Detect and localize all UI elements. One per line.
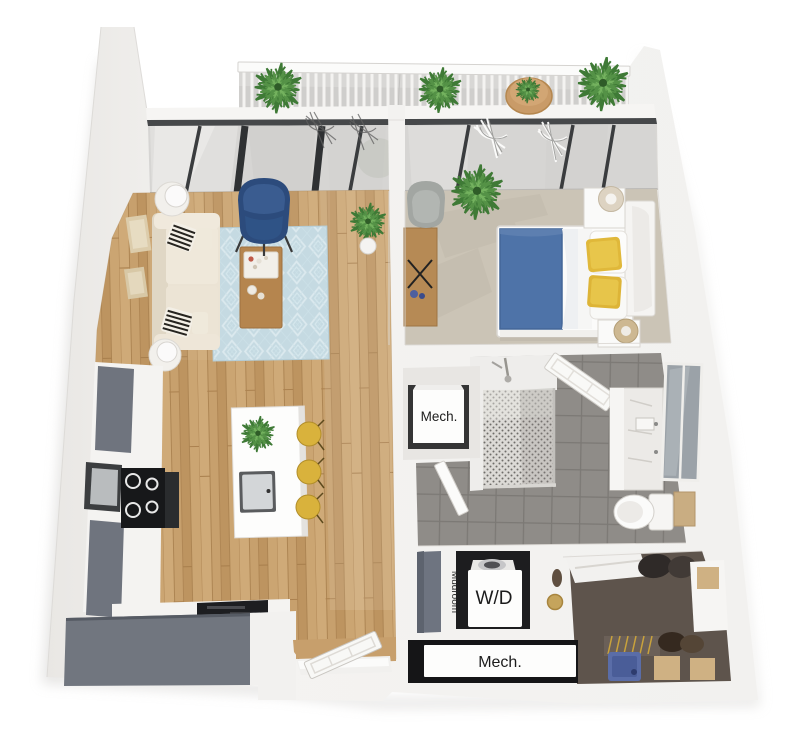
svg-text:Mech.: Mech. — [478, 654, 522, 671]
svg-text:W/D: W/D — [476, 588, 513, 609]
svg-text:Mech.: Mech. — [421, 409, 458, 424]
